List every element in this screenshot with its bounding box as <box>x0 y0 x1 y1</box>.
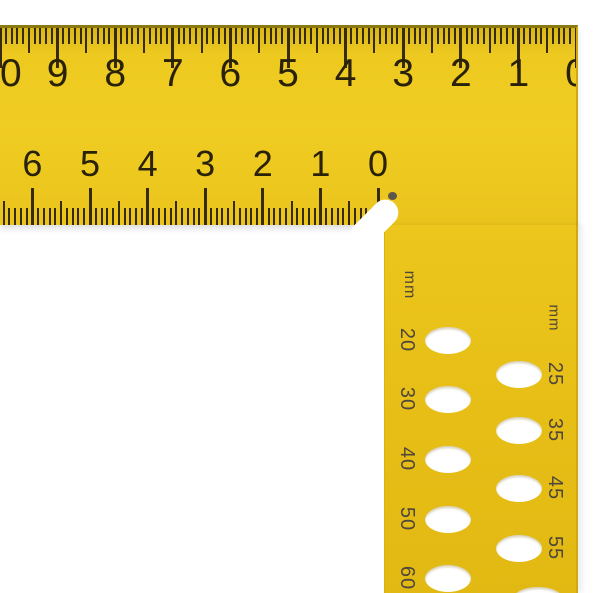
scale-tick <box>291 201 293 225</box>
scale-number: 3 <box>195 146 215 182</box>
scale-number: 0 <box>368 146 388 182</box>
drill-hole <box>496 417 542 444</box>
scale-number: 6 <box>22 146 42 182</box>
scale-tick <box>175 201 177 225</box>
scale-tick <box>54 208 56 225</box>
unit-label-right: mm <box>547 305 562 332</box>
scale-tick <box>279 208 281 225</box>
scale-number: 4 <box>138 146 158 182</box>
horizontal-arm: 109876543210 6543210 <box>0 25 578 225</box>
hole-size-label: 55 <box>545 536 565 560</box>
try-square-photo: 109876543210 6543210 mm2030405060mm25354… <box>0 0 600 593</box>
scale-tick <box>227 208 229 225</box>
scale-tick <box>101 208 103 225</box>
scale-tick <box>31 188 34 225</box>
scale-tick <box>325 208 327 225</box>
hole-size-label: 30 <box>397 387 417 411</box>
scale-tick <box>233 201 235 225</box>
scale-tick <box>198 208 200 225</box>
vertical-arm: mm2030405060mm25354555 <box>384 225 578 593</box>
scale-tick <box>158 208 160 225</box>
scale-tick <box>26 208 28 225</box>
scale-tick <box>124 208 126 225</box>
scale-tick <box>135 208 137 225</box>
inner-scale: 6543210 <box>0 28 576 225</box>
scale-tick <box>296 208 298 225</box>
scale-tick <box>210 208 212 225</box>
scale-tick <box>273 208 275 225</box>
scale-tick <box>331 208 333 225</box>
scale-tick <box>118 201 120 225</box>
scale-tick <box>319 188 322 225</box>
scale-tick <box>193 208 195 225</box>
scale-tick <box>204 188 207 225</box>
scale-tick <box>314 208 316 225</box>
scale-tick <box>95 208 97 225</box>
scale-tick <box>170 208 172 225</box>
scale-tick <box>239 208 241 225</box>
scale-tick <box>268 208 270 225</box>
hole-size-label: 50 <box>397 507 417 531</box>
scale-tick <box>164 208 166 225</box>
scale-tick <box>216 208 218 225</box>
scale-tick <box>141 208 143 225</box>
drill-hole <box>496 535 542 562</box>
hole-size-label: 40 <box>397 447 417 471</box>
scale-tick <box>43 208 45 225</box>
scale-tick <box>3 201 5 225</box>
scale-tick <box>152 208 154 225</box>
scale-tick <box>181 208 183 225</box>
scale-tick <box>72 208 74 225</box>
scale-tick <box>285 208 287 225</box>
scale-number: 1 <box>310 146 330 182</box>
drill-hole <box>425 506 471 533</box>
drill-hole <box>425 565 471 592</box>
drill-hole <box>513 587 563 593</box>
scale-tick <box>187 208 189 225</box>
drill-hole <box>425 386 471 413</box>
hole-size-label: 20 <box>397 328 417 352</box>
scale-number: 5 <box>80 146 100 182</box>
scale-tick <box>146 188 149 225</box>
scale-tick <box>308 208 310 225</box>
scale-tick <box>348 201 350 225</box>
scale-tick <box>261 188 264 225</box>
scale-tick <box>20 208 22 225</box>
scale-tick <box>83 208 85 225</box>
drill-hole <box>496 475 542 502</box>
hole-size-label: 45 <box>545 476 565 500</box>
scale-tick <box>49 208 51 225</box>
drill-hole <box>425 327 471 354</box>
scale-tick <box>245 208 247 225</box>
hole-size-label: 25 <box>545 362 565 386</box>
scale-tick <box>60 201 62 225</box>
notch-shadow-dot <box>388 192 397 200</box>
unit-label-left: mm <box>401 271 417 300</box>
drill-hole <box>496 361 542 388</box>
scale-tick <box>112 208 114 225</box>
hole-size-label: 35 <box>545 418 565 442</box>
scale-tick <box>256 208 258 225</box>
scale-tick <box>337 208 339 225</box>
drill-hole <box>425 446 471 473</box>
scale-tick <box>37 208 39 225</box>
scale-tick <box>129 208 131 225</box>
hole-size-label: 60 <box>397 566 417 590</box>
scale-tick <box>250 208 252 225</box>
scale-tick <box>14 208 16 225</box>
scale-tick <box>221 208 223 225</box>
scale-tick <box>8 208 10 225</box>
scale-tick <box>342 208 344 225</box>
scale-tick <box>66 208 68 225</box>
scale-tick <box>77 208 79 225</box>
scale-tick <box>302 208 304 225</box>
scale-number: 2 <box>253 146 273 182</box>
scale-tick <box>89 188 92 225</box>
scale-tick <box>106 208 108 225</box>
